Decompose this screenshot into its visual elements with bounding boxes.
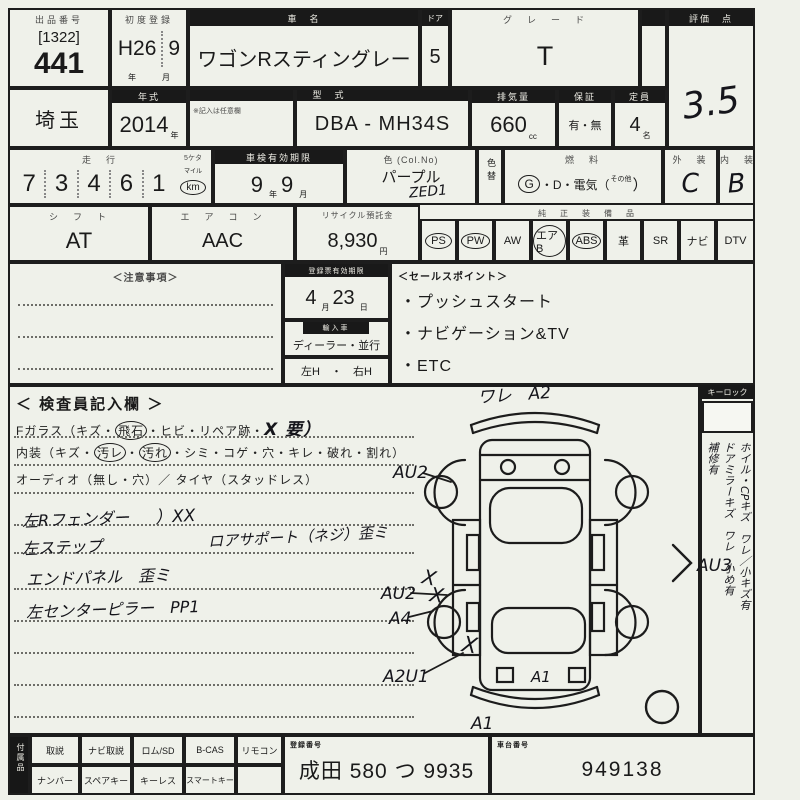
ruled-line [14, 652, 414, 654]
accessories-side-label: 付属品 [15, 743, 26, 773]
score-header: 評価 点 [669, 10, 753, 26]
sales-point-item: ・ナビゲーション&TV [400, 320, 570, 344]
model-code-cell: DBA - MH34S [295, 88, 470, 148]
equip-navi: ナビ [679, 219, 716, 262]
color-change-cell: 色替 [477, 148, 503, 205]
displacement: 660 [490, 112, 527, 138]
mileage-digit: 6 [109, 170, 141, 198]
equip-pw: PW [457, 219, 494, 262]
fuel-other: その他 [611, 174, 632, 184]
equip-sunroof-label: SR [653, 235, 668, 247]
registration-number-cell: 登録番号 成田 580 つ 9935 [283, 735, 490, 795]
accessory-navi-manual-cell: ナビ取説 [80, 735, 132, 765]
doors-cell: ドア 5 [420, 8, 450, 88]
ruled-line [18, 336, 273, 338]
chassis-number-cell: 車台番号 949138 [490, 735, 755, 795]
equip-abs-label: ABS [572, 233, 600, 249]
first-registration-value: H26 9 [112, 28, 186, 70]
model-year-header: 年式 [112, 90, 186, 103]
keylock-header: キーロック [700, 385, 755, 399]
interior-rest: ・シミ・コゲ・穴・キレ・破れ・割れ） [171, 446, 405, 460]
ruled-line [14, 492, 414, 494]
auction-sheet: 出品番号 [1322] 441 初度登録 H26 9 年 月 車 名 ワゴンRス… [0, 0, 800, 800]
equip-leather: 革 [605, 219, 642, 262]
fuel-cell: 燃 料 G ・D・電気（ その他 ） [503, 148, 663, 205]
accessory-rom-sd-cell: ロム/SD [132, 735, 184, 765]
displacement-header: 排気量 [472, 90, 555, 103]
displacement-unit: cc [529, 132, 537, 141]
color-code: ZED1 [408, 182, 447, 201]
accessory-smart-key-cell: スマートキー [184, 765, 236, 795]
damage-note-2: 左ステップ [22, 533, 103, 560]
interior-grade-cell: 内 装 B [718, 148, 755, 205]
fuel-value: G ・D・電気（ その他 ） [505, 166, 661, 202]
equip-sunroof: SR [642, 219, 679, 262]
first-registration-header: 初度登録 [112, 13, 186, 26]
interior-dot: ・ [126, 446, 139, 460]
sidebar-note-repair: 補修有 [704, 442, 720, 730]
recycle-fee-unit: 円 [380, 246, 388, 257]
equip-pw-label: PW [461, 233, 491, 249]
fuel-options: ・D・電気（ [541, 176, 610, 193]
score-value: 3.5 [665, 64, 757, 141]
import-value: ディーラー・並行 [285, 335, 388, 355]
accessory-keyless-cell: キーレス [132, 765, 184, 795]
sidebar-note-mirror: ドアミラーキズ ワレ 小め有 [720, 442, 736, 730]
grade-value: T [452, 28, 638, 84]
accessory-blank-cell [236, 765, 283, 795]
registration-validity-cell: 登録票有効期限 4 月 23 日 [283, 262, 390, 320]
shaken-year: 9 [251, 172, 263, 198]
optional-note-cell: ※記入は任意欄 [188, 88, 295, 148]
equip-aw-label: AW [504, 235, 521, 247]
equip-airbag: エアB [531, 219, 568, 262]
displacement-cell: 排気量 660 cc [470, 88, 557, 148]
interior-circled-2: 汚れ [139, 443, 171, 462]
mileage-digits: 7 3 4 6 1 [14, 166, 174, 202]
damage-note-1: 左Rフェンダー [22, 504, 130, 532]
grade-cell: グ レ ー ド T [450, 8, 640, 88]
paint-flag-cell [640, 8, 667, 88]
aircon-value: AAC [152, 221, 293, 261]
accessory-keyless-label: キーレス [140, 774, 176, 787]
accessory-number-label: ナンバー [37, 774, 73, 787]
shift-cell: シ フ ト AT [8, 205, 150, 262]
shaken-month-unit: 月 [299, 189, 307, 200]
mileage-digit-note: 5ケタ [178, 153, 208, 163]
recycle-fee-cell: リサイクル預託金 8,930 円 [295, 205, 420, 262]
equip-airbag-label: エアB [533, 225, 566, 257]
mileage-unit-km: km [180, 180, 205, 195]
shift-value: AT [10, 221, 148, 261]
equip-leather-label: 革 [618, 233, 629, 249]
accessory-remote-cell: リモコン [236, 735, 283, 765]
capacity-header: 定員 [615, 90, 665, 103]
aircon-cell: エ ア コ ン AAC [150, 205, 295, 262]
first-reg-month-unit: 月 [162, 72, 170, 83]
exterior-grade-cell: 外 装 C [663, 148, 718, 205]
warranty-cell: 保証 有・無 [557, 88, 613, 148]
accessory-spare-key-cell: スペアキー [80, 765, 132, 795]
damage-note-1b: ）XX [154, 501, 196, 528]
ruled-line [14, 716, 414, 718]
warranty-value: 有・無 [559, 105, 611, 145]
interior-prefix: 内装（キズ・ [16, 446, 94, 460]
equip-aw: AW [494, 219, 531, 262]
model-code: DBA - MH34S [297, 104, 468, 144]
mileage-digit: 4 [77, 170, 109, 198]
model-year-cell: 年式 2014 年 [110, 88, 188, 148]
ruled-line [14, 464, 414, 466]
registration-validity-value: 4 月 23 日 [285, 279, 388, 317]
equip-ps-label: PS [425, 233, 452, 249]
accessory-smart-key-label: スマートキー [186, 775, 234, 786]
car-name-header: 車 名 [190, 10, 418, 26]
keylock-box [702, 401, 753, 433]
doors-header: ドア [422, 10, 448, 26]
car-name: ワゴンRスティングレー [190, 32, 418, 82]
sales-points-cell: ＜セールスポイント＞ ・プッシュスタート ・ナビゲーション&TV ・ETC [390, 262, 755, 385]
optional-note: ※記入は任意欄 [193, 106, 293, 116]
mileage-cell: 走 行 5ケタ 7 3 4 6 1 マイル km [8, 148, 213, 205]
import-cell: 輸入車 ディーラー・並行 [283, 320, 390, 357]
model-year-unit: 年 [170, 130, 178, 141]
equip-dtv-label: DTV [725, 235, 747, 247]
first-reg-divider [161, 31, 163, 67]
displacement-value: 660 cc [472, 105, 555, 145]
lot-number-cell: 出品番号 [1322] 441 [8, 8, 110, 88]
damage-note-3: エンドパネル 歪ミ [26, 561, 171, 590]
accessory-navi-manual-label: ナビ取説 [88, 744, 124, 757]
ruled-line [18, 368, 273, 370]
accessory-rom-sd-label: ロム/SD [141, 744, 174, 757]
registration-validity-header: 登録票有効期限 [285, 264, 388, 277]
mileage-unit-badge: マイル km [176, 166, 210, 195]
doors-value: 5 [422, 32, 448, 82]
import-header: 輸入車 [303, 322, 369, 334]
ruled-line [18, 304, 273, 306]
equip-dtv: DTV [716, 219, 755, 262]
reg-valid-month: 4 [305, 287, 316, 310]
shaken-value: 9 年 9 月 [215, 166, 343, 204]
accessory-remote-label: リモコン [241, 744, 277, 757]
sidebar-note-wheel: ホイル・CPキズ ワレ／小キズ有 [736, 442, 752, 730]
capacity-value: 4 名 [615, 105, 665, 145]
sales-point-item: ・プッシュスタート [400, 288, 553, 312]
recycle-fee-header: リサイクル預託金 [297, 210, 418, 221]
paint-flag-header [642, 10, 665, 26]
reg-valid-month-unit: 月 [321, 302, 329, 313]
model-year-value: 2014 年 [112, 105, 186, 145]
ruled-line [14, 684, 414, 686]
capacity-unit: 名 [643, 130, 651, 141]
accessories-side-cell: 付属品 [8, 735, 30, 795]
warranty-header: 保証 [559, 90, 611, 103]
first-reg-units: 年 月 [112, 70, 186, 84]
sales-point-item: ・ETC [400, 352, 452, 376]
first-reg-month: 9 [168, 37, 180, 61]
fuel-close-paren: ） [633, 174, 648, 195]
location-value: 埼玉 [10, 90, 108, 146]
score-cell: 評価 点 3.5 [667, 8, 755, 148]
fuel-gasoline: G [518, 175, 539, 193]
recycle-fee-value: 8,930 円 [297, 221, 418, 261]
first-reg-era: H26 [118, 37, 157, 61]
accessory-spare-key-label: スペアキー [84, 774, 128, 787]
inspector-title: ＜ 検査員記入欄 ＞ [16, 393, 164, 414]
exterior-grade: C [664, 162, 718, 205]
shaken-cell: 車検有効期限 9 年 9 月 [213, 148, 345, 205]
color-cell: 色 (Col.No) パープル ZED1 [345, 148, 477, 205]
mileage-digit: 7 [14, 170, 44, 198]
recycle-fee: 8,930 [327, 230, 377, 253]
chassis-number: 949138 [492, 749, 753, 791]
first-reg-year-unit: 年 [128, 72, 136, 83]
equip-ps: PS [420, 219, 457, 262]
shaken-year-unit: 年 [269, 189, 277, 200]
sales-points-header: ＜セールスポイント＞ [398, 268, 508, 283]
interior-line: 内装（キズ・汚レ・汚れ・シミ・コゲ・穴・キレ・破れ・割れ） [16, 443, 405, 462]
lot-number: 441 [10, 46, 108, 82]
model-year: 2014 [120, 112, 169, 138]
location-cell: 埼玉 [8, 88, 110, 148]
mileage-digit: 3 [44, 170, 76, 198]
first-registration-cell: 初度登録 H26 9 年 月 [110, 8, 188, 88]
mileage-unit-mile: マイル [176, 166, 210, 175]
ruled-line [14, 436, 414, 438]
lot-number-header: 出品番号 [10, 13, 108, 26]
color-change-label: 色替 [485, 158, 498, 184]
equip-navi-label: ナビ [687, 233, 709, 249]
handle-cell: 左H ・ 右H [283, 357, 390, 385]
mileage-header: 走 行 [50, 153, 150, 166]
sidebar-notes: ホイル・CPキズ ワレ／小キズ有 ドアミラーキズ ワレ 小め有 補修有 [704, 442, 752, 730]
grade-header: グ レ ー ド [452, 13, 638, 26]
interior-grade: B [719, 163, 755, 205]
accessory-manual-cell: 取説 [30, 735, 80, 765]
mileage-digit: 1 [142, 170, 174, 198]
accessory-bcas-cell: B-CAS [184, 735, 236, 765]
interior-circled-1: 汚レ [94, 443, 126, 462]
equip-abs: ABS [568, 219, 605, 262]
reg-valid-day: 23 [332, 287, 354, 310]
reg-valid-day-unit: 日 [360, 302, 368, 313]
fuel-header: 燃 料 [505, 153, 661, 166]
accessory-bcas-label: B-CAS [196, 745, 224, 755]
lot-bracket: [1322] [10, 26, 108, 48]
equipment-header: 純 正 装 備 品 [430, 208, 745, 219]
capacity: 4 [629, 114, 640, 137]
capacity-cell: 定員 4 名 [613, 88, 667, 148]
registration-number: 成田 580 つ 9935 [285, 749, 488, 791]
accessory-manual-label: 取説 [46, 744, 64, 757]
shaken-month: 9 [281, 172, 293, 198]
audio-line: オーディオ（無し・穴）／ タイヤ（スタッドレス） [16, 471, 318, 488]
car-name-cell: 車 名 ワゴンRスティングレー [188, 8, 420, 88]
handle-value: 左H ・ 右H [285, 359, 388, 383]
shaken-header: 車検有効期限 [215, 150, 343, 164]
caution-notes-cell: ＜注意事項＞ [8, 262, 283, 385]
accessory-number-cell: ナンバー [30, 765, 80, 795]
caution-notes-header: ＜注意事項＞ [10, 269, 281, 284]
